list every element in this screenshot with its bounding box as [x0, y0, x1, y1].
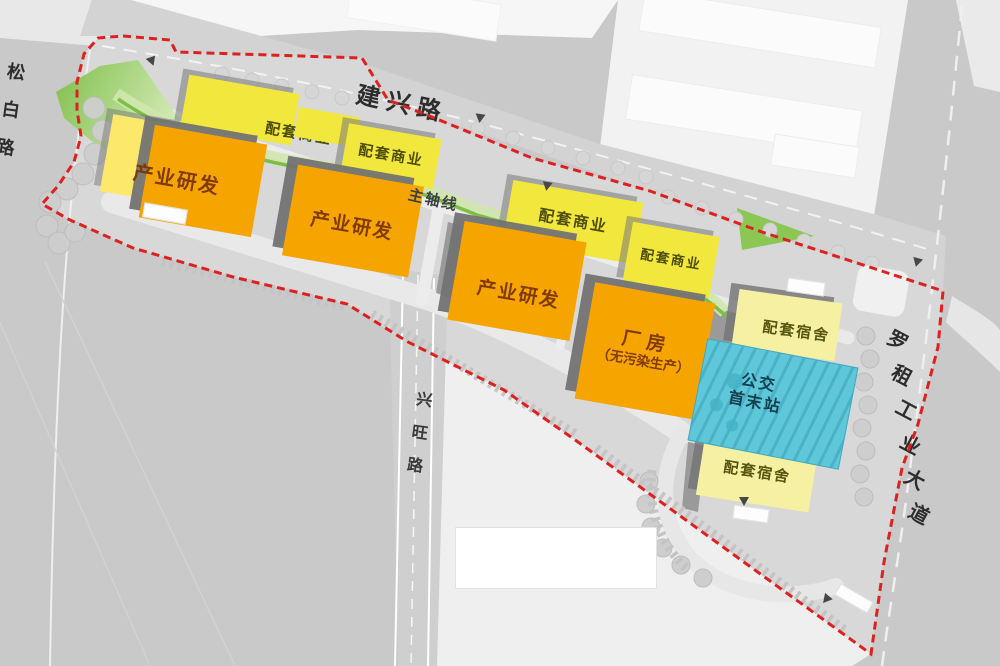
entrance-arrow-icon — [739, 497, 749, 506]
building-label: 配套商业 — [639, 247, 703, 273]
green-patch-east — [737, 208, 814, 250]
existing-building — [346, 0, 502, 42]
building-label: 配套商业 — [537, 207, 609, 237]
building-factory: 厂房 （无污染生产） — [575, 282, 716, 419]
building-label: 产业研发 — [309, 209, 396, 245]
annotation-chip — [834, 583, 873, 613]
building-label: 配套宿舍 — [761, 319, 831, 346]
road-label-jianxing: 建兴路 — [353, 75, 451, 129]
annotation-chip — [732, 505, 770, 524]
entrance-arrow-icon — [146, 56, 158, 68]
building-label: 配套商业 — [357, 142, 425, 170]
block-e — [956, 0, 1000, 92]
road-label-xingwang: 兴旺路 — [406, 385, 434, 476]
building-research-1: 产业研发 — [139, 125, 268, 237]
entrance-arrow-icon — [819, 593, 832, 606]
site-plaza — [851, 264, 910, 318]
existing-building — [638, 0, 882, 69]
block-nw — [0, 0, 96, 46]
building-label: 产业研发 — [475, 277, 562, 313]
building-label: 配套宿舍 — [722, 459, 792, 487]
building-research-3: 产业研发 — [447, 221, 586, 341]
building-blank — [456, 528, 656, 588]
lane-line-left — [50, 50, 90, 666]
road-label-songbai: 松白路 — [0, 57, 27, 161]
annotation-chip — [786, 277, 826, 296]
trees-east — [851, 327, 879, 506]
building-label: 产业研发 — [131, 161, 222, 199]
entrance-arrow-icon — [541, 181, 552, 192]
road-label-luozu: 罗租工业大道 — [887, 324, 932, 529]
site-plan: 配套商业 产业研发 配套商业 产业研发 配套商业 配套商业 产业研发 厂房 （无… — [0, 0, 1000, 666]
entrance-arrow-icon — [474, 113, 485, 123]
entrance-arrow-icon — [911, 257, 923, 268]
building-commercial-4: 配套商业 — [622, 222, 719, 298]
